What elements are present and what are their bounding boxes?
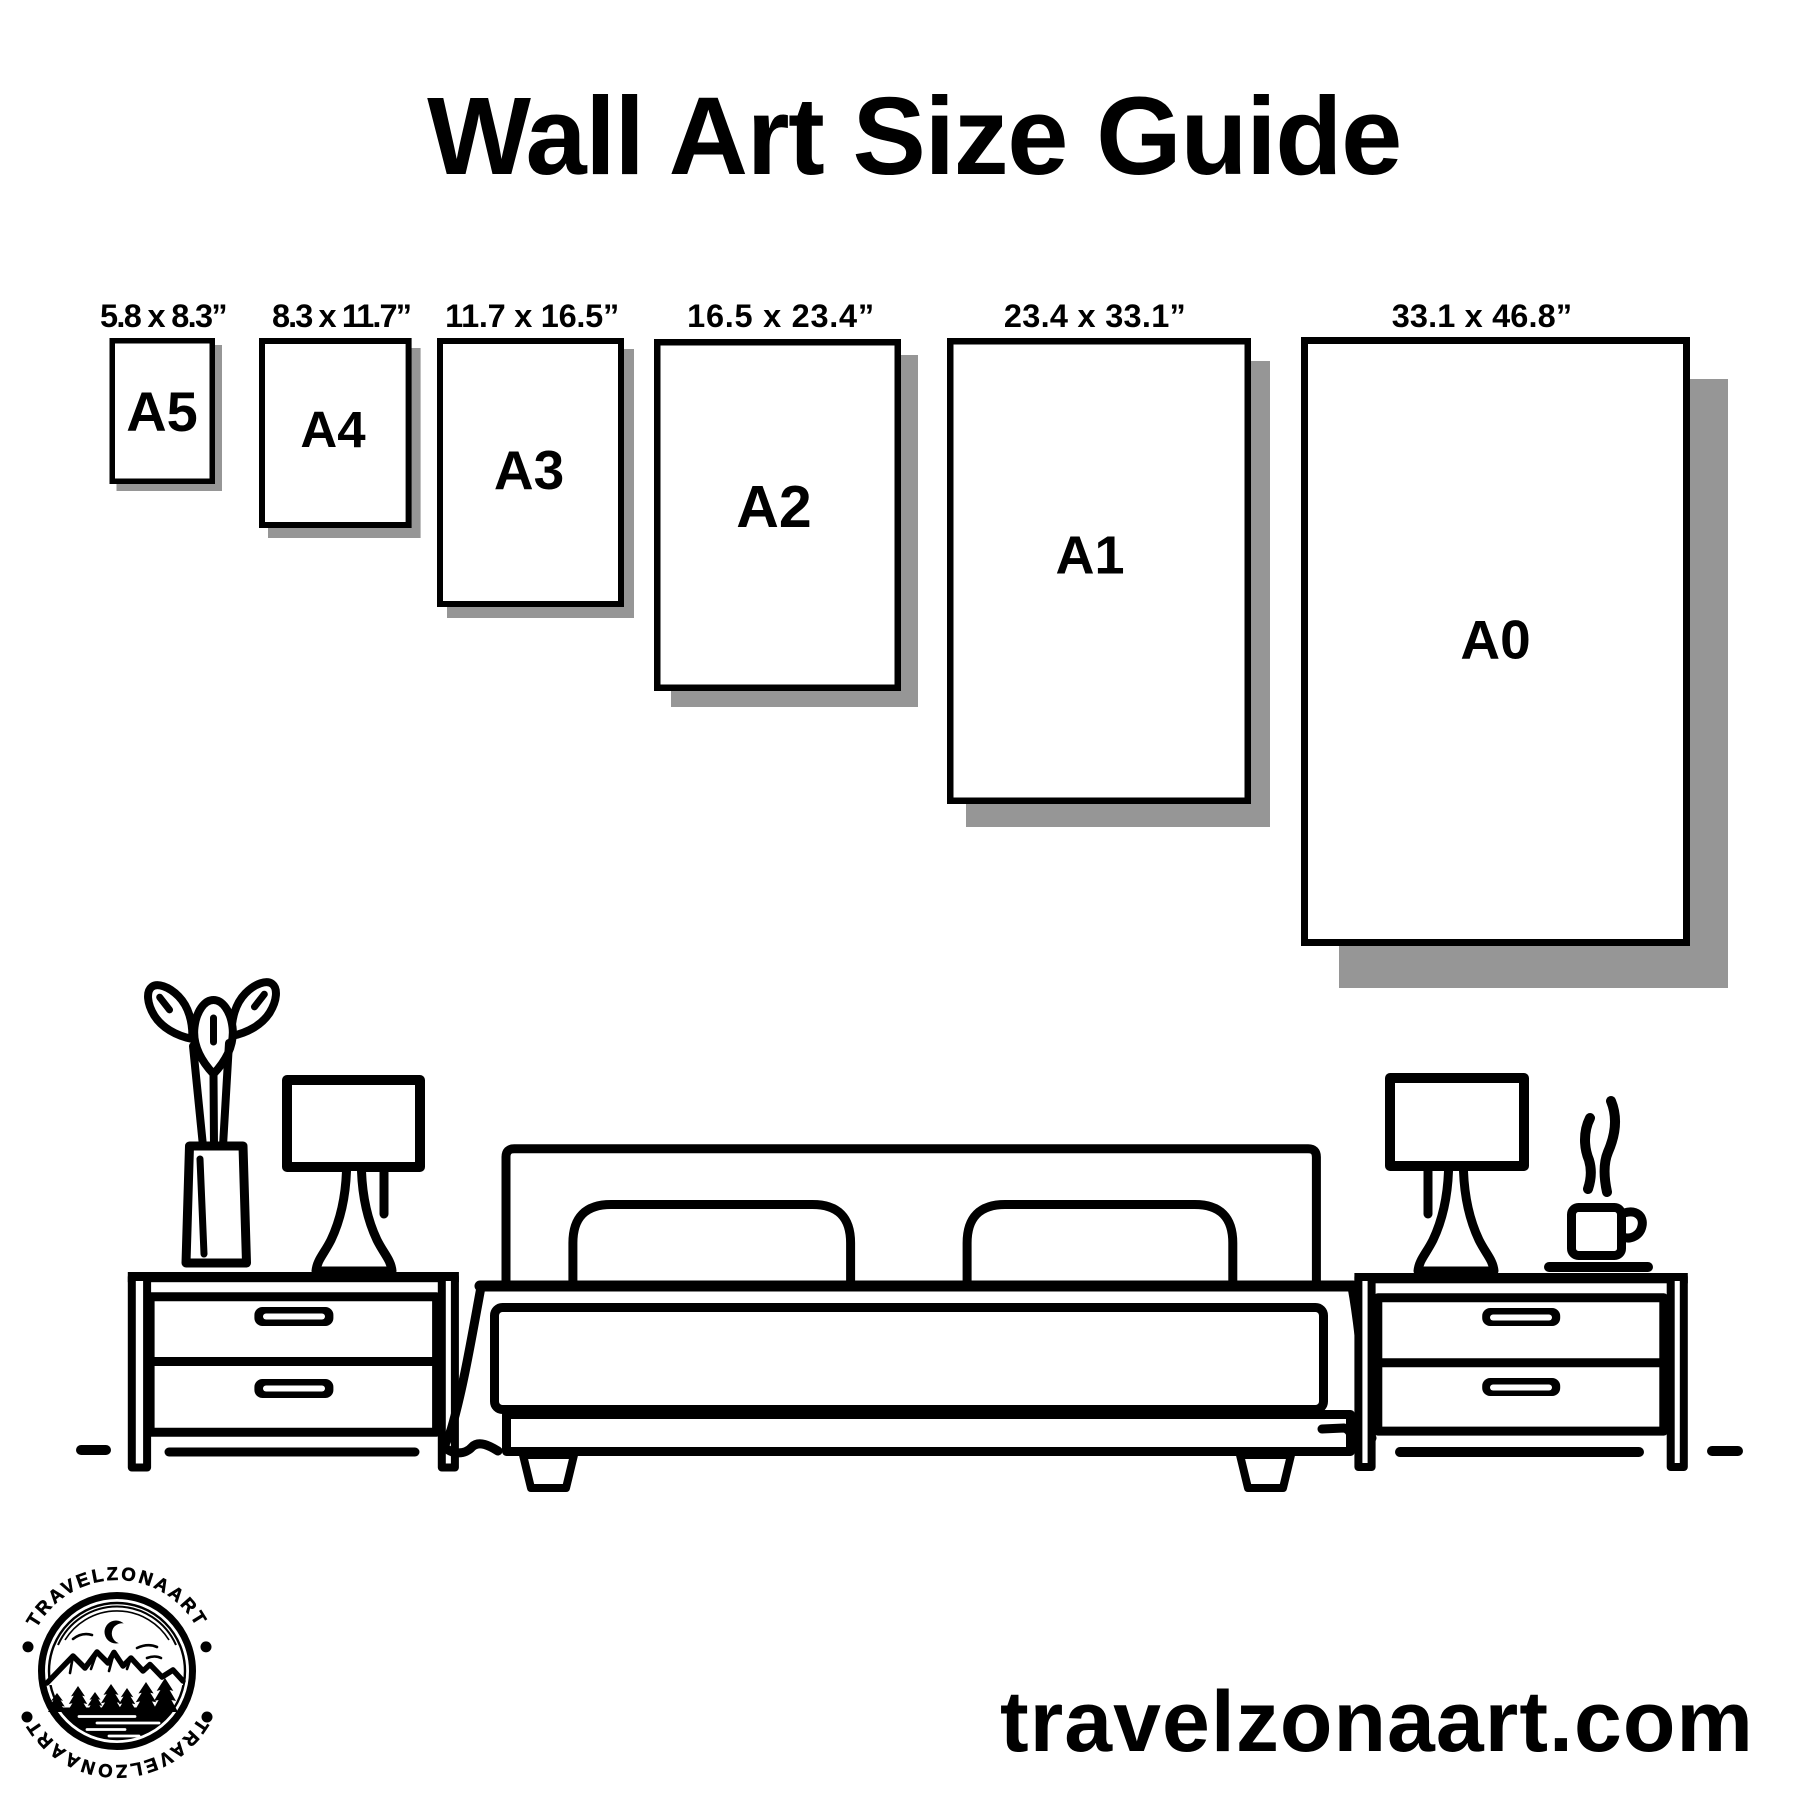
svg-text:23.4 x 33.1”: 23.4 x 33.1” xyxy=(1004,298,1186,334)
svg-text:5.8 x 8.3”: 5.8 x 8.3” xyxy=(100,298,226,334)
svg-text:A0: A0 xyxy=(1460,609,1530,671)
svg-text:A4: A4 xyxy=(300,401,366,458)
svg-text:A5: A5 xyxy=(126,380,198,443)
svg-text:A1: A1 xyxy=(1055,526,1124,586)
svg-text:33.1 x 46.8”: 33.1 x 46.8” xyxy=(1392,298,1573,334)
svg-text:Wall Art Size Guide: Wall Art Size Guide xyxy=(427,75,1401,198)
svg-text:16.5 x 23.4”: 16.5 x 23.4” xyxy=(687,298,875,334)
svg-text:A2: A2 xyxy=(736,474,811,540)
svg-text:A3: A3 xyxy=(494,439,564,501)
svg-text:travelzonaart.com: travelzonaart.com xyxy=(1000,1674,1754,1770)
svg-text:11.7 x 16.5”: 11.7 x 16.5” xyxy=(445,298,619,334)
svg-text:8.3 x 11.7”: 8.3 x 11.7” xyxy=(272,298,410,334)
